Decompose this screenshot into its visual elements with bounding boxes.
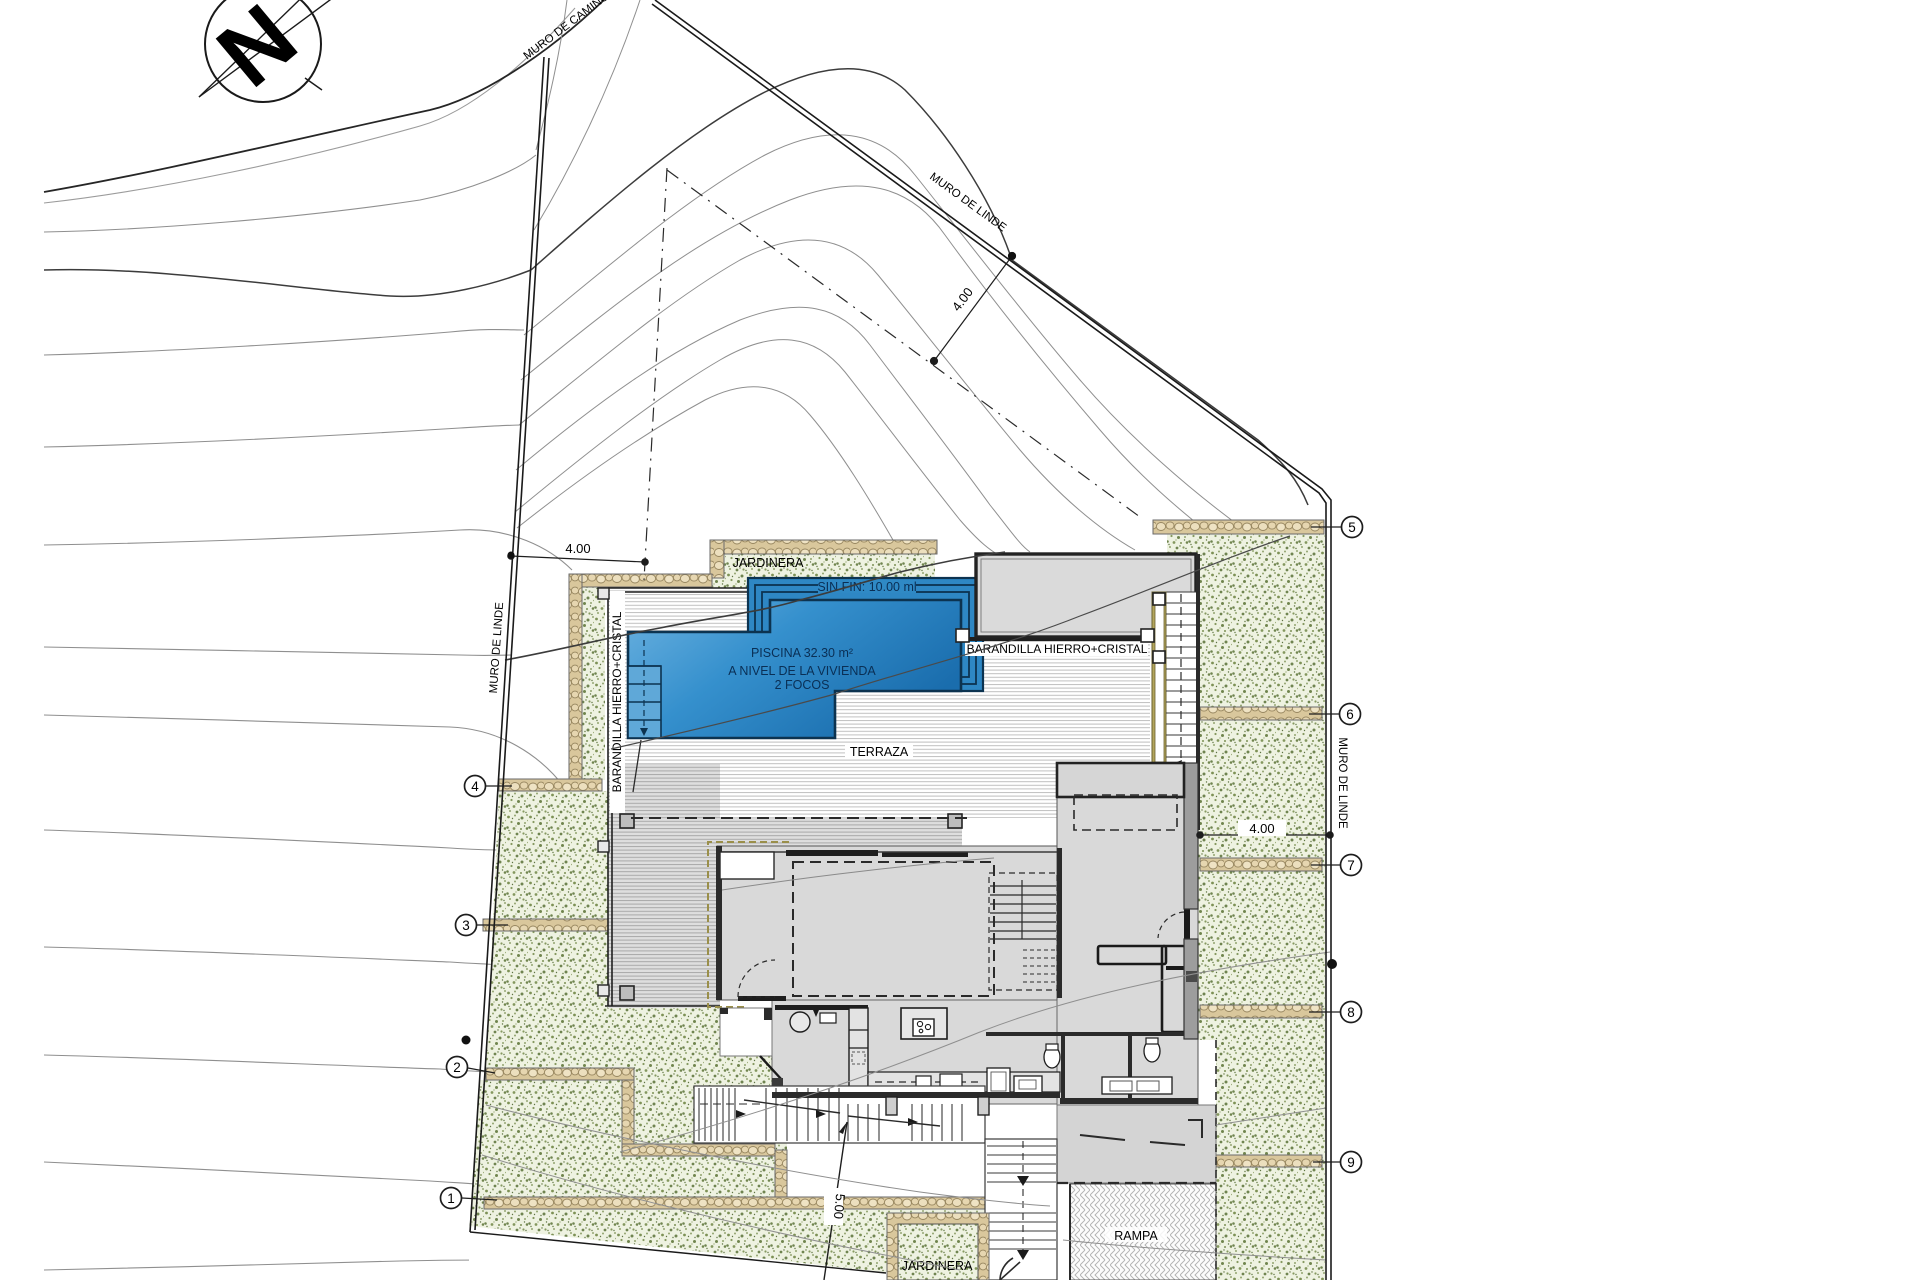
svg-text:2: 2 [453,1060,461,1075]
svg-text:4: 4 [471,779,479,794]
svg-text:3: 3 [462,918,470,933]
svg-text:JARDINERA: JARDINERA [902,1259,974,1273]
svg-text:9: 9 [1347,1155,1355,1170]
svg-text:BARANDILLA HIERRO+CRISTAL: BARANDILLA HIERRO+CRISTAL [967,642,1148,656]
svg-text:2 FOCOS: 2 FOCOS [775,678,830,692]
svg-text:7: 7 [1347,858,1355,873]
svg-text:RAMPA: RAMPA [1114,1229,1158,1243]
svg-text:5: 5 [1348,520,1356,535]
svg-text:4.00: 4.00 [1249,821,1274,836]
svg-text:4.00: 4.00 [565,541,590,556]
svg-text:TERRAZA: TERRAZA [850,745,909,759]
svg-text:A NIVEL DE LA VIVIENDA: A NIVEL DE LA VIVIENDA [728,664,876,678]
svg-text:5.00: 5.00 [831,1193,848,1220]
svg-text:JARDINERA: JARDINERA [733,556,805,570]
svg-text:1: 1 [447,1191,455,1206]
svg-text:6: 6 [1346,707,1354,722]
svg-text:8: 8 [1347,1005,1355,1020]
svg-text:MURO DE LINDE: MURO DE LINDE [1336,737,1348,829]
svg-text:PISCINA 32.30 m²: PISCINA 32.30 m² [751,646,853,660]
